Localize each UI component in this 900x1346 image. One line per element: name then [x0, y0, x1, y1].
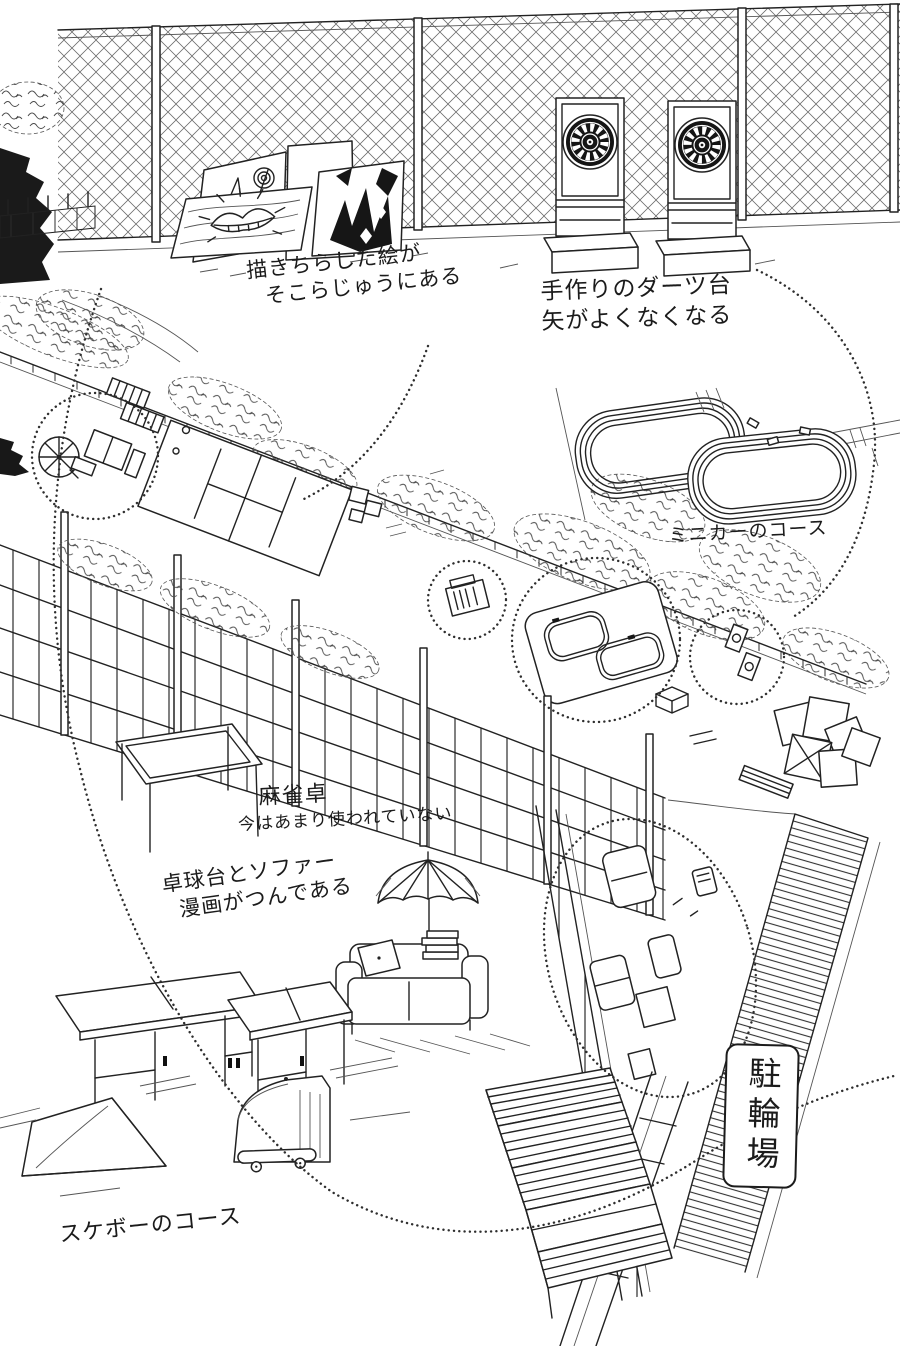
dartboard — [563, 115, 617, 169]
lounger-aerial — [100, 378, 170, 433]
label-bicycle-parking: 駐輪場 — [722, 1043, 800, 1189]
label-darts: 手作りのダーツ台 矢がよくなくなる — [540, 271, 734, 337]
stool-aerial — [656, 687, 688, 713]
illustration-page: 描きちらした絵が そこらじゅうにある 手作りのダーツ台 矢がよくなくなる ミニカ… — [0, 0, 900, 1346]
label-bicycle-parking-text: 駐輪場 — [740, 1056, 782, 1177]
tennis-court-aerial — [138, 420, 352, 575]
manga-stack — [422, 931, 458, 959]
minicar-track-aerial — [522, 578, 681, 706]
dartboard-stand — [544, 98, 638, 273]
skate-ramps — [0, 1058, 410, 1196]
staircase — [486, 1068, 688, 1346]
label-mahjong: 麻雀卓 今はあまり使われていない — [258, 774, 453, 835]
radio-aerial — [444, 573, 489, 616]
skateboard — [238, 1149, 317, 1173]
sofa — [336, 931, 530, 1054]
parasol-aerial — [39, 437, 79, 478]
strip-right-corner — [656, 687, 880, 798]
canvas-pile-aerial — [774, 697, 880, 787]
